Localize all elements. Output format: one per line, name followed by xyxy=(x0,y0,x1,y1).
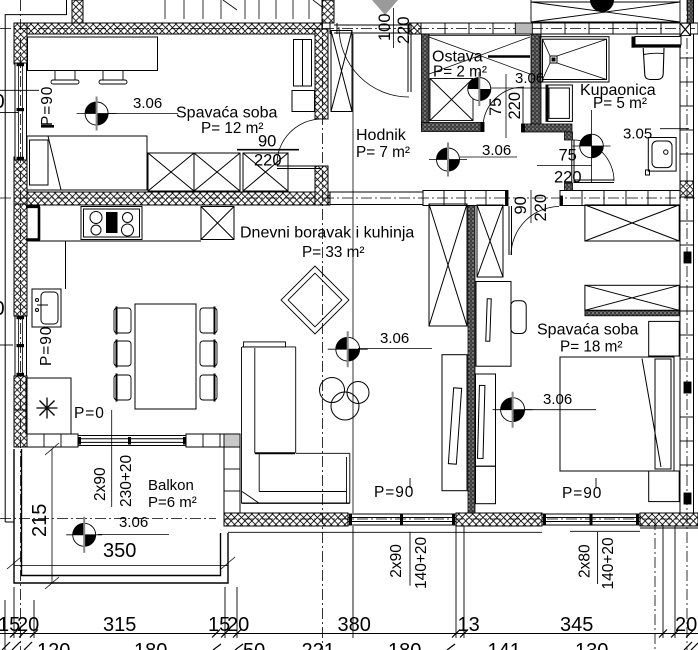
svg-text:0: 0 xyxy=(0,298,5,320)
svg-text:75: 75 xyxy=(559,147,577,165)
svg-text:Spavaća soba: Spavaća soba xyxy=(176,105,278,122)
svg-text:215: 215 xyxy=(29,504,51,537)
svg-text:3.06: 3.06 xyxy=(133,95,162,112)
svg-text:221: 221 xyxy=(302,640,335,650)
svg-text:20: 20 xyxy=(17,614,39,636)
svg-text:141: 141 xyxy=(488,640,521,650)
svg-text:2x90: 2x90 xyxy=(388,544,405,578)
svg-text:P= 5 m²: P= 5 m² xyxy=(593,95,647,112)
svg-text:380: 380 xyxy=(338,614,371,636)
svg-text:3.06: 3.06 xyxy=(482,142,511,159)
svg-text:75: 75 xyxy=(487,98,505,116)
svg-text:Dnevni boravak i kuhinja: Dnevni boravak i kuhinja xyxy=(240,225,414,242)
svg-text:130: 130 xyxy=(575,640,608,650)
svg-text:20: 20 xyxy=(675,614,697,636)
svg-text:P= 2 m²: P= 2 m² xyxy=(433,64,487,81)
svg-text:3.06: 3.06 xyxy=(380,330,409,347)
svg-text:Spavaća soba: Spavaća soba xyxy=(537,322,639,339)
svg-text:50: 50 xyxy=(243,640,265,650)
svg-text:345: 345 xyxy=(560,614,593,636)
svg-text:220: 220 xyxy=(506,92,524,120)
svg-text:P=90: P=90 xyxy=(38,326,55,366)
svg-text:P=90: P=90 xyxy=(562,485,602,502)
svg-text:20: 20 xyxy=(227,614,249,636)
svg-text:100: 100 xyxy=(376,13,394,41)
svg-text:P= 33 m²: P= 33 m² xyxy=(302,244,365,261)
svg-text:Balkon: Balkon xyxy=(148,477,194,494)
svg-text:220: 220 xyxy=(254,152,282,170)
svg-text:0: 0 xyxy=(0,91,5,113)
svg-text:350: 350 xyxy=(103,540,136,562)
svg-text:13: 13 xyxy=(458,614,480,636)
svg-text:140+20: 140+20 xyxy=(413,536,430,589)
svg-text:3.06: 3.06 xyxy=(515,70,544,87)
svg-text:2x80: 2x80 xyxy=(577,544,594,578)
svg-text:P=6 m²: P=6 m² xyxy=(148,494,197,511)
svg-text:120: 120 xyxy=(37,640,70,650)
svg-text:180: 180 xyxy=(134,640,167,650)
svg-text:P=0: P=0 xyxy=(74,405,105,422)
svg-text:P=90: P=90 xyxy=(374,484,414,501)
svg-text:220: 220 xyxy=(554,169,582,187)
svg-text:220: 220 xyxy=(395,16,413,44)
svg-text:P= 7 m²: P= 7 m² xyxy=(356,144,410,161)
svg-text:3.05: 3.05 xyxy=(623,126,652,143)
svg-text:P= 18 m²: P= 18 m² xyxy=(560,339,623,356)
svg-text:P= 12 m²: P= 12 m² xyxy=(201,120,264,137)
svg-text:140+20: 140+20 xyxy=(600,537,617,590)
svg-text:Hodnik: Hodnik xyxy=(356,127,407,144)
svg-text:220: 220 xyxy=(532,194,550,222)
svg-text:3.06: 3.06 xyxy=(119,514,148,531)
svg-text:P=90: P=90 xyxy=(39,86,56,126)
svg-text:315: 315 xyxy=(103,614,136,636)
svg-text:2x90: 2x90 xyxy=(92,467,109,501)
svg-text:230+20: 230+20 xyxy=(118,454,135,507)
svg-text:90: 90 xyxy=(258,133,276,151)
svg-text:90: 90 xyxy=(512,196,530,214)
svg-text:3.06: 3.06 xyxy=(543,391,572,408)
svg-text:180: 180 xyxy=(388,640,421,650)
